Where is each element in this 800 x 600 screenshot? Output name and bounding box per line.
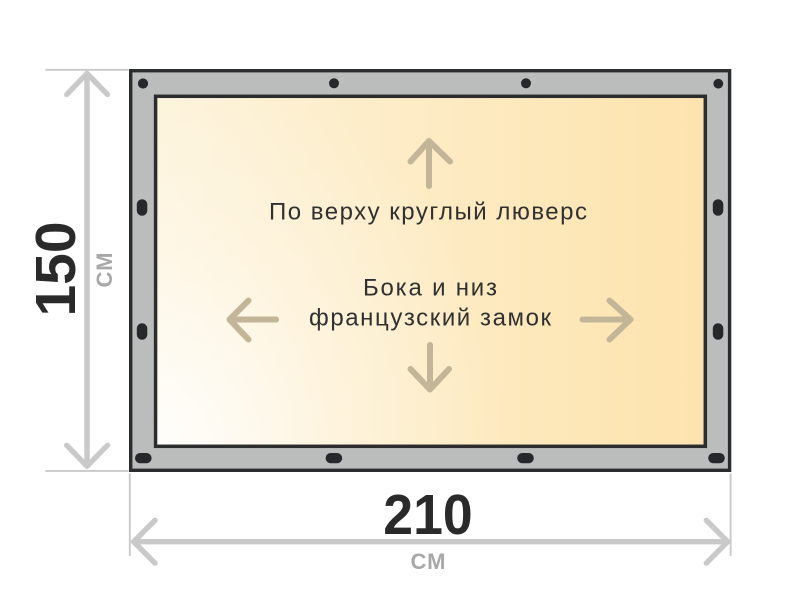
svg-text:СМ: СМ [411,549,446,574]
svg-text:150: 150 [24,221,88,316]
svg-text:210: 210 [383,482,472,546]
svg-text:СМ: СМ [92,253,117,288]
svg-text:французский замок: французский замок [309,305,552,332]
svg-text:Бока и низ: Бока и низ [363,275,497,302]
